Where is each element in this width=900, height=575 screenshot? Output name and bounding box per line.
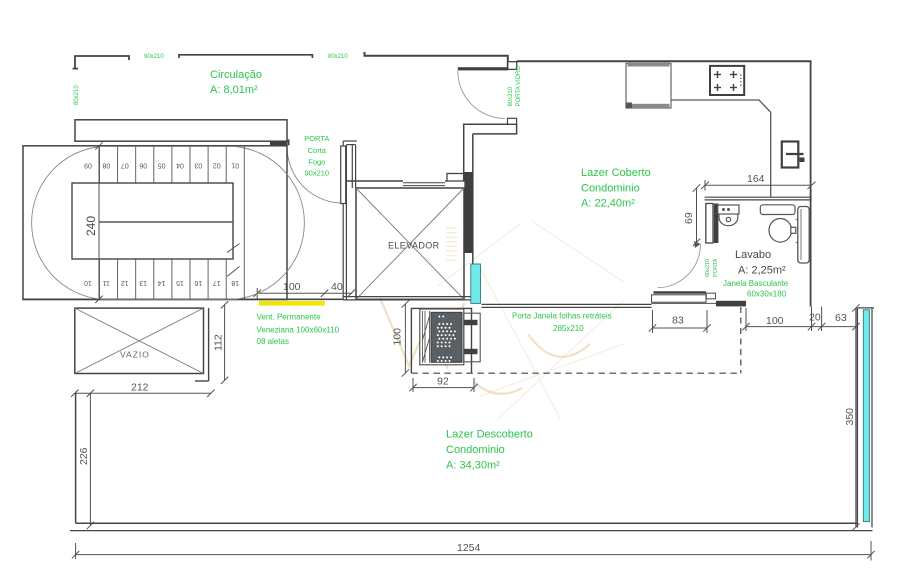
svg-text:Lazer Coberto: Lazer Coberto (581, 167, 651, 179)
svg-text:80x210: 80x210 (508, 86, 514, 106)
svg-text:16: 16 (194, 279, 202, 286)
svg-text:08: 08 (102, 162, 110, 169)
svg-text:18: 18 (231, 279, 239, 286)
svg-text:Vent. Permanente: Vent. Permanente (257, 313, 322, 322)
svg-text:A: 8,01m²: A: 8,01m² (210, 84, 258, 96)
svg-text:Lazer Descoberto: Lazer Descoberto (446, 429, 533, 441)
svg-text:100: 100 (766, 315, 784, 327)
svg-text:Circulação: Circulação (210, 69, 262, 81)
svg-text:09: 09 (84, 162, 92, 169)
svg-text:90x210: 90x210 (304, 169, 329, 178)
svg-text:PORTA VIDRO: PORTA VIDRO (516, 66, 522, 107)
svg-text:Lavabo: Lavabo (735, 249, 771, 261)
svg-text:A: 22,40m²: A: 22,40m² (581, 198, 635, 210)
svg-text:01: 01 (231, 162, 239, 169)
svg-text:100: 100 (283, 281, 301, 293)
svg-text:350: 350 (844, 408, 856, 426)
svg-text:20: 20 (809, 312, 821, 324)
svg-text:14: 14 (158, 279, 166, 286)
svg-text:Corta: Corta (308, 146, 327, 155)
svg-text:226: 226 (78, 447, 90, 465)
svg-text:ELEVADOR: ELEVADOR (388, 241, 440, 251)
svg-text:80x210: 80x210 (328, 54, 348, 60)
svg-text:VAZIO: VAZIO (120, 350, 150, 360)
svg-text:PORTA: PORTA (713, 258, 719, 277)
svg-text:90x210: 90x210 (144, 54, 164, 60)
svg-text:40: 40 (331, 281, 343, 293)
svg-text:Janela Basculante: Janela Basculante (723, 279, 789, 288)
svg-text:17: 17 (213, 279, 221, 286)
svg-text:112: 112 (213, 334, 225, 351)
svg-text:100: 100 (392, 328, 404, 346)
svg-text:285x210: 285x210 (553, 324, 584, 333)
svg-text:05: 05 (158, 162, 166, 169)
svg-text:04: 04 (176, 162, 184, 169)
svg-text:60x210: 60x210 (705, 259, 711, 277)
svg-text:212: 212 (131, 382, 149, 394)
svg-text:83: 83 (672, 315, 684, 327)
svg-text:13: 13 (139, 279, 147, 286)
svg-text:07: 07 (121, 162, 129, 169)
svg-text:15: 15 (176, 279, 184, 286)
svg-text:03: 03 (194, 162, 202, 169)
svg-text:08 aletas: 08 aletas (257, 337, 289, 346)
svg-text:11: 11 (103, 279, 110, 286)
svg-text:1254: 1254 (457, 542, 481, 554)
svg-text:Condominio: Condominio (446, 444, 505, 456)
svg-text:10: 10 (84, 279, 92, 286)
svg-text:60x30x180: 60x30x180 (747, 290, 787, 299)
svg-text:Veneziana 100x60x110: Veneziana 100x60x110 (257, 325, 340, 334)
svg-text:164: 164 (747, 173, 765, 185)
svg-text:80x210: 80x210 (74, 85, 80, 105)
svg-text:Porta Janela folhas retráteis: Porta Janela folhas retráteis (512, 312, 612, 321)
svg-text:240: 240 (84, 216, 98, 236)
svg-text:A: 2,25m²: A: 2,25m² (738, 265, 786, 277)
svg-text:02: 02 (213, 162, 221, 169)
svg-text:Fogo: Fogo (308, 158, 325, 167)
svg-text:63: 63 (835, 312, 847, 324)
svg-text:PORTA: PORTA (304, 134, 329, 143)
svg-text:92: 92 (437, 376, 449, 388)
svg-text:12: 12 (121, 279, 129, 286)
svg-text:69: 69 (683, 212, 695, 224)
svg-text:A: 34,30m²: A: 34,30m² (446, 460, 500, 472)
svg-text:Condominio: Condominio (581, 182, 640, 194)
svg-text:06: 06 (139, 162, 147, 169)
